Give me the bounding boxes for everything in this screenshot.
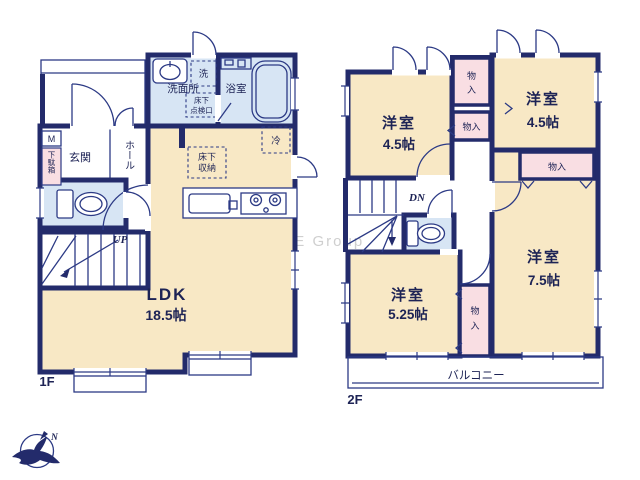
- toilet-tank-icon: [57, 190, 73, 218]
- terrace-step-b: [189, 359, 251, 375]
- closet-b-label: 物入: [462, 121, 480, 132]
- casement-window-arc: [427, 47, 450, 70]
- room-nw-area: 4.5帖: [383, 136, 416, 152]
- compass-north-label: N: [50, 433, 59, 443]
- washroom-door-gap: [191, 52, 216, 59]
- underfloor-storage-label-1: 床下: [198, 151, 216, 162]
- ldk-label: LDK: [147, 285, 188, 304]
- terrace-step-a: [74, 376, 146, 392]
- room-nw-label: 洋室: [382, 114, 416, 132]
- underfloor-storage-label-2: 収納: [198, 162, 216, 173]
- floor-2-label: 2F: [347, 392, 362, 407]
- bathroom-label: 浴室: [226, 82, 247, 95]
- laundry-label: 洗: [199, 68, 209, 80]
- room-sw-door-arc: [460, 254, 490, 284]
- closet-a-label-2: 入: [467, 85, 476, 95]
- window-gap: [392, 69, 418, 76]
- floor-plan-drawing: ME Group M 下駄箱 洗 洗面: [0, 0, 640, 480]
- underfloor-hatch-label-2: 点検口: [190, 105, 213, 115]
- room-sw: [348, 252, 460, 356]
- meter-box-label: M: [48, 134, 56, 144]
- toilet-door-gap: [123, 192, 129, 218]
- window-gap: [426, 69, 451, 76]
- floor-1-label: 1F: [39, 374, 54, 389]
- kitchen-wall-stub: [179, 126, 185, 148]
- room-nw-door-gap: [416, 175, 450, 181]
- closet-c-label: 物入: [548, 161, 566, 172]
- stairs-up-label: UP: [113, 234, 128, 246]
- compass-icon: N: [12, 431, 60, 468]
- room-sw-area: 5.25帖: [388, 306, 428, 322]
- room-se-label: 洋室: [527, 248, 561, 266]
- window-gap: [535, 52, 560, 59]
- toilet-2f-door-gap: [427, 212, 451, 218]
- hall-label: ホール: [123, 140, 135, 170]
- stair-risers-2f: [360, 180, 396, 213]
- closet-a: [453, 58, 490, 105]
- closet-d-label-1: 物: [470, 305, 479, 316]
- ldk-area-label: 18.5帖: [145, 307, 186, 323]
- shoe-cabinet-label: 下駄箱: [47, 151, 56, 175]
- entrance-door-gap: [70, 123, 134, 130]
- floor-plan-page: ME Group M 下駄箱 洗 洗面: [0, 0, 640, 480]
- balcony-label: バルコニー: [447, 369, 504, 382]
- closet-a-label-1: 物: [467, 70, 476, 81]
- stair-arrow-head-2f: [388, 237, 396, 246]
- underfloor-hatch-label-1: 床下: [194, 95, 209, 105]
- closet-d-label-2: 入: [470, 321, 479, 331]
- stairs-down-label: DN: [408, 192, 426, 204]
- casement-window-arc: [393, 47, 416, 70]
- room-ne-area: 4.5帖: [527, 114, 560, 130]
- toilet-tank-icon: [407, 221, 418, 246]
- room-sw-door-gap: [440, 249, 458, 255]
- window-gap: [496, 52, 521, 59]
- room-se-door-gap: [489, 181, 495, 212]
- ldk-door-gap: [291, 155, 299, 179]
- entrance-label: 玄関: [69, 150, 91, 164]
- casement-window-arc: [497, 30, 520, 53]
- casement-window-arc: [536, 30, 559, 53]
- fridge-label: 冷: [271, 135, 281, 147]
- floor-2-plan: 物 入 物入 物入 物 入 DN: [341, 30, 603, 407]
- room-se-area: 7.5帖: [528, 272, 561, 288]
- ldk-door-arc: [297, 157, 317, 177]
- floor-1-plan: M 下駄箱 洗 洗面所 床下 点検口 浴室 玄: [36, 32, 317, 392]
- room-ne-label: 洋室: [526, 90, 560, 108]
- porch: [41, 60, 145, 126]
- room-sw-label: 洋室: [391, 286, 425, 304]
- toilet-2f-door-arc: [428, 190, 452, 214]
